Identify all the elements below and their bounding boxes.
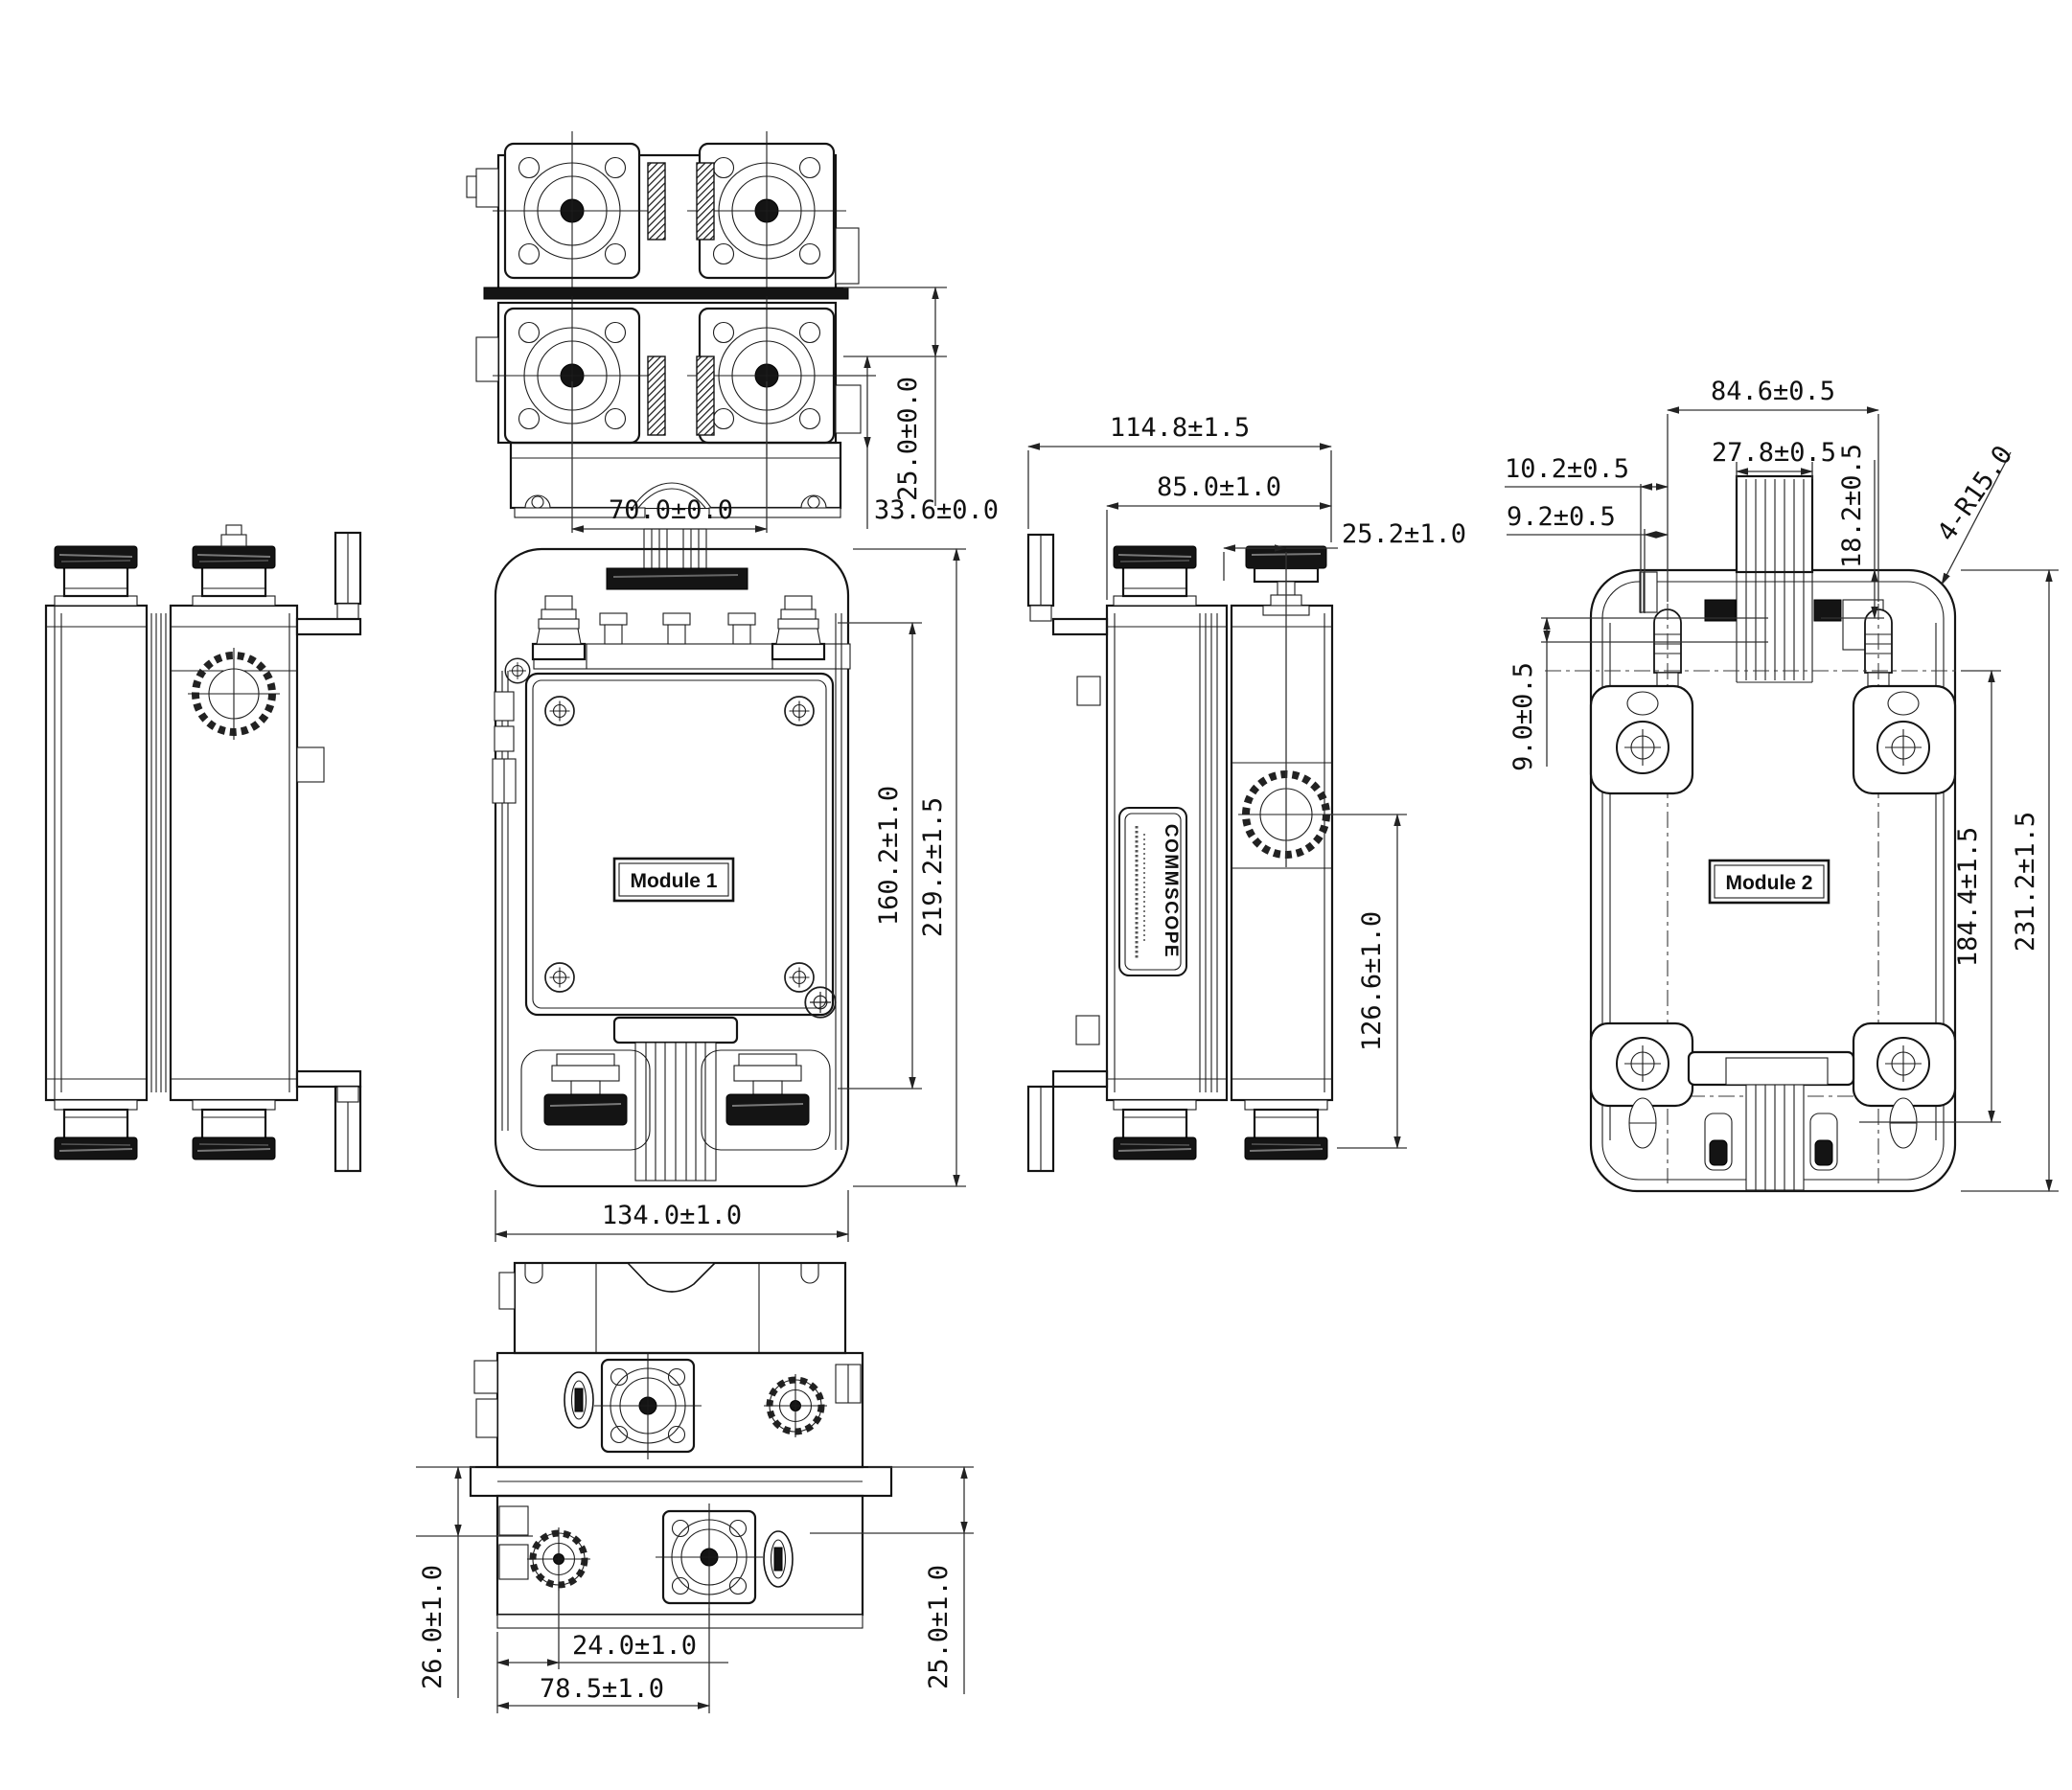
module2-label: Module 2 [1725,872,1812,894]
brand-label: COMMSCOPE [1161,824,1181,958]
side-port [188,648,280,740]
rear-view: Module 2 84.6±0.5 27.8±0.5 [1505,377,2059,1191]
port-marking-label-left [648,163,665,240]
front-bottom-connector-left [544,1054,627,1125]
module1-label: Module 1 [630,870,717,892]
dim-bottom-left-port-offset: 26.0±1.0 [418,1565,448,1689]
dim-front-overall-height: 219.2±1.5 [918,797,948,937]
top-view-body [467,131,861,517]
module2-nameplate: Module 2 [1710,861,1829,903]
technical-drawing-canvas: 70.0±0.0 25.0±0.0 33.6±0.0 [0,0,2072,1790]
dim-bottom-edge-to-port: 24.0±1.0 [572,1631,697,1661]
module-parting-band [484,287,848,299]
dim-rear-corner-radius: 4-R15.0 [1932,441,2019,547]
left-view-bracket [297,533,360,1171]
dim-front-overall-width: 134.0±1.0 [602,1201,742,1230]
dim-front-body-height: 160.2±1.0 [874,786,904,926]
bottom-far-plate [499,1263,845,1353]
module1-nameplate: Module 1 [614,859,733,901]
engineering-drawing-page: 70.0±0.0 25.0±0.0 33.6±0.0 [0,0,2072,1790]
dim-rear-slot-offset-b: 9.2±0.5 [1507,502,1616,532]
dim-top-row-offset: 25.0±0.0 [893,377,923,501]
dim-top-connector-spacing: 70.0±0.0 [609,495,733,525]
top-view: 70.0±0.0 25.0±0.0 33.6±0.0 [467,131,999,533]
port-marking-label-left2 [648,356,665,435]
bottom-near-plate [497,1496,863,1628]
dim-rear-bracket-offset: 9.0±0.5 [1508,662,1538,771]
dim-top-bracket-offset: 33.6±0.0 [874,495,999,525]
dim-rear-bolt-spacing: 84.6±0.5 [1711,377,1835,406]
front-top-gland [607,529,748,589]
dim-rear-slot-offset-a: 10.2±0.5 [1505,454,1629,484]
port-marking-label-right2 [697,356,714,435]
dim-side-body-height: 126.6±1.0 [1357,911,1387,1051]
side-view-bracket [1028,535,1107,1171]
rear-bottom-gland [1689,1052,1853,1190]
dim-rear-gland-offset: 18.2±0.5 [1837,444,1867,568]
left-side-view [46,525,360,1171]
rear-top-gland [1737,476,1812,682]
front-bottom-connector-right [726,1054,809,1125]
right-side-view: COMMSCOPE [1028,413,1466,1171]
port-marking-label-right [697,163,714,240]
front-view: Module 1 [493,529,966,1242]
front-bottom [521,1018,830,1181]
dim-side-overall-depth: 114.8±1.5 [1110,413,1250,443]
bottom-mid-plate [474,1352,863,1467]
dim-bottom-port-spacing: 78.5±1.0 [540,1674,664,1704]
dim-side-body-depth: 85.0±1.0 [1157,472,1281,502]
commscope-nameplate: COMMSCOPE [1119,808,1186,975]
dim-rear-mount-height: 184.4±1.5 [1953,827,1983,967]
dim-bottom-right-port-offset: 25.0±1.0 [924,1565,954,1689]
dim-side-connector-offset: 25.2±1.0 [1342,519,1466,549]
bottom-view: 26.0±1.0 24.0±1.0 78.5±1.0 25.0±1.0 [416,1263,974,1713]
front-top-connectors [533,596,850,669]
dim-rear-gland-width: 27.8±0.5 [1712,438,1836,468]
dim-rear-overall-height: 231.2±1.5 [2011,812,2040,952]
